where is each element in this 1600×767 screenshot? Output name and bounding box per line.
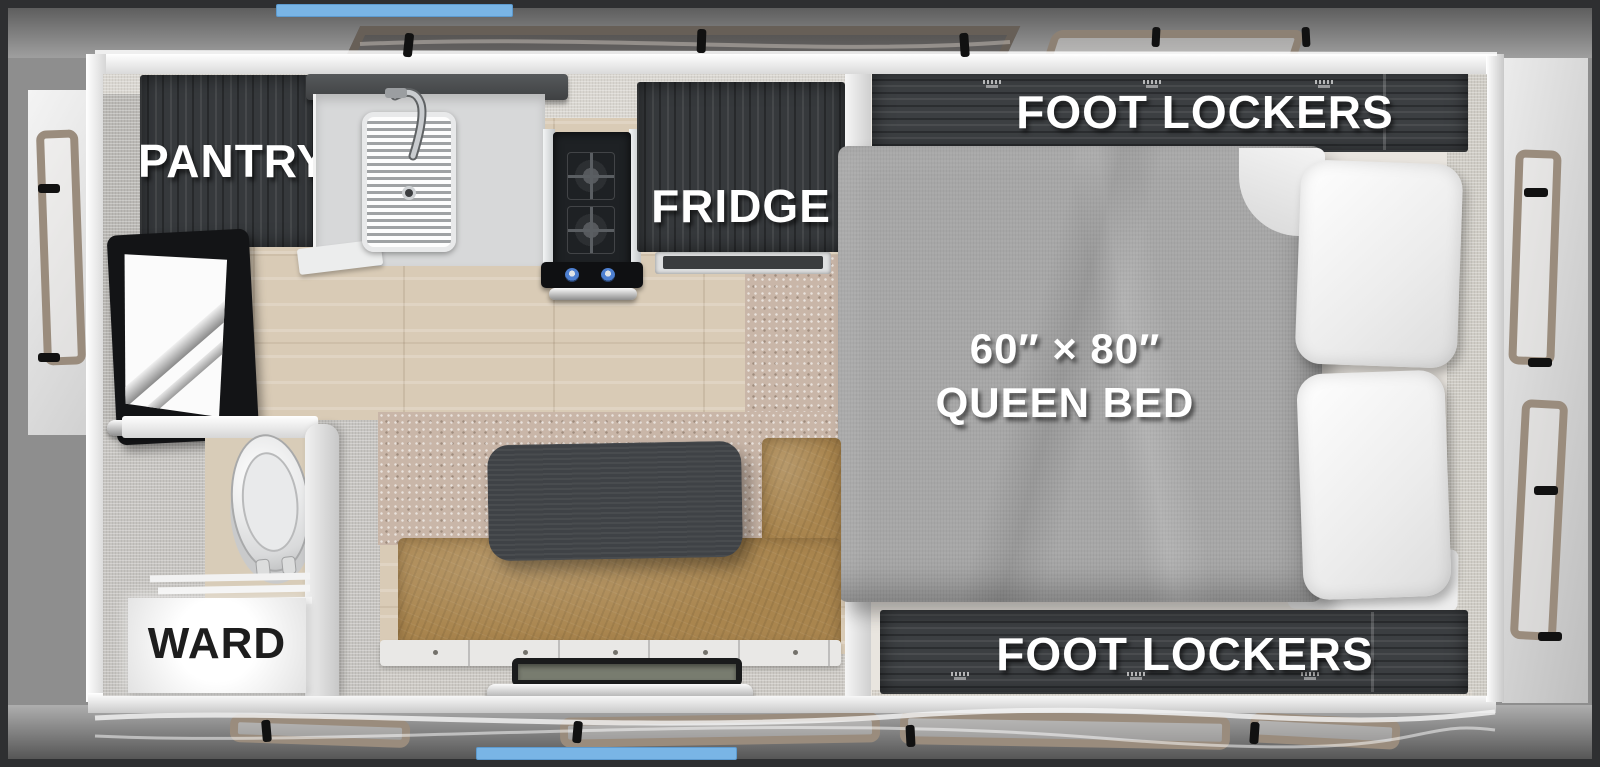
stove-control-panel (541, 262, 643, 288)
interior: PANTRY FRIDGE FOOT LOCKERS (103, 74, 1487, 696)
entry-step (512, 658, 742, 686)
wall-rim-bottom (88, 693, 1496, 713)
bathroom-partition (305, 424, 339, 696)
sink-drain (402, 186, 416, 200)
burner-top (567, 152, 615, 200)
wall-rim-right (1486, 54, 1504, 702)
clearance-marker-top (276, 4, 513, 17)
bumper-frame-right (900, 710, 1231, 750)
dinette-table (487, 441, 743, 561)
cushion-button (523, 650, 528, 655)
tv (107, 228, 260, 445)
dinette-bench-side (762, 438, 841, 550)
carpet-column (745, 255, 840, 435)
pillow-top (1294, 159, 1463, 369)
clearance-marker-bottom (476, 747, 737, 760)
side-window-right-upper (1508, 149, 1561, 365)
bed-dimensions-label: 60″ × 80″ (855, 326, 1275, 372)
side-window-left (36, 129, 86, 365)
cushion-button (703, 650, 708, 655)
queen-bed (838, 146, 1322, 602)
cushion-button (793, 650, 798, 655)
wall-rim-top (88, 54, 1496, 76)
pillow-bottom (1296, 369, 1452, 600)
foot-lockers-top-label: FOOT LOCKERS (925, 88, 1485, 136)
floorplan-stage: PANTRY FRIDGE FOOT LOCKERS (0, 0, 1600, 767)
cushion-button (613, 650, 618, 655)
entry-step-handle (487, 684, 753, 696)
stove-knob-left (565, 268, 579, 282)
fridge-label: FRIDGE (643, 182, 839, 230)
ward-label: WARD (128, 620, 306, 668)
cushion-button (433, 650, 438, 655)
bumper-frame-center (560, 712, 880, 748)
fridge-vent-slot (663, 256, 823, 269)
bed-name-label: QUEEN BED (855, 380, 1275, 426)
stove-knob-right (601, 268, 615, 282)
pantry-label: PANTRY (135, 137, 331, 185)
faucet-icon (373, 84, 443, 174)
burner-bottom (567, 206, 615, 254)
foot-lockers-bottom-label: FOOT LOCKERS (905, 630, 1465, 678)
tv-screen (117, 241, 242, 429)
oven-handle (549, 288, 637, 300)
